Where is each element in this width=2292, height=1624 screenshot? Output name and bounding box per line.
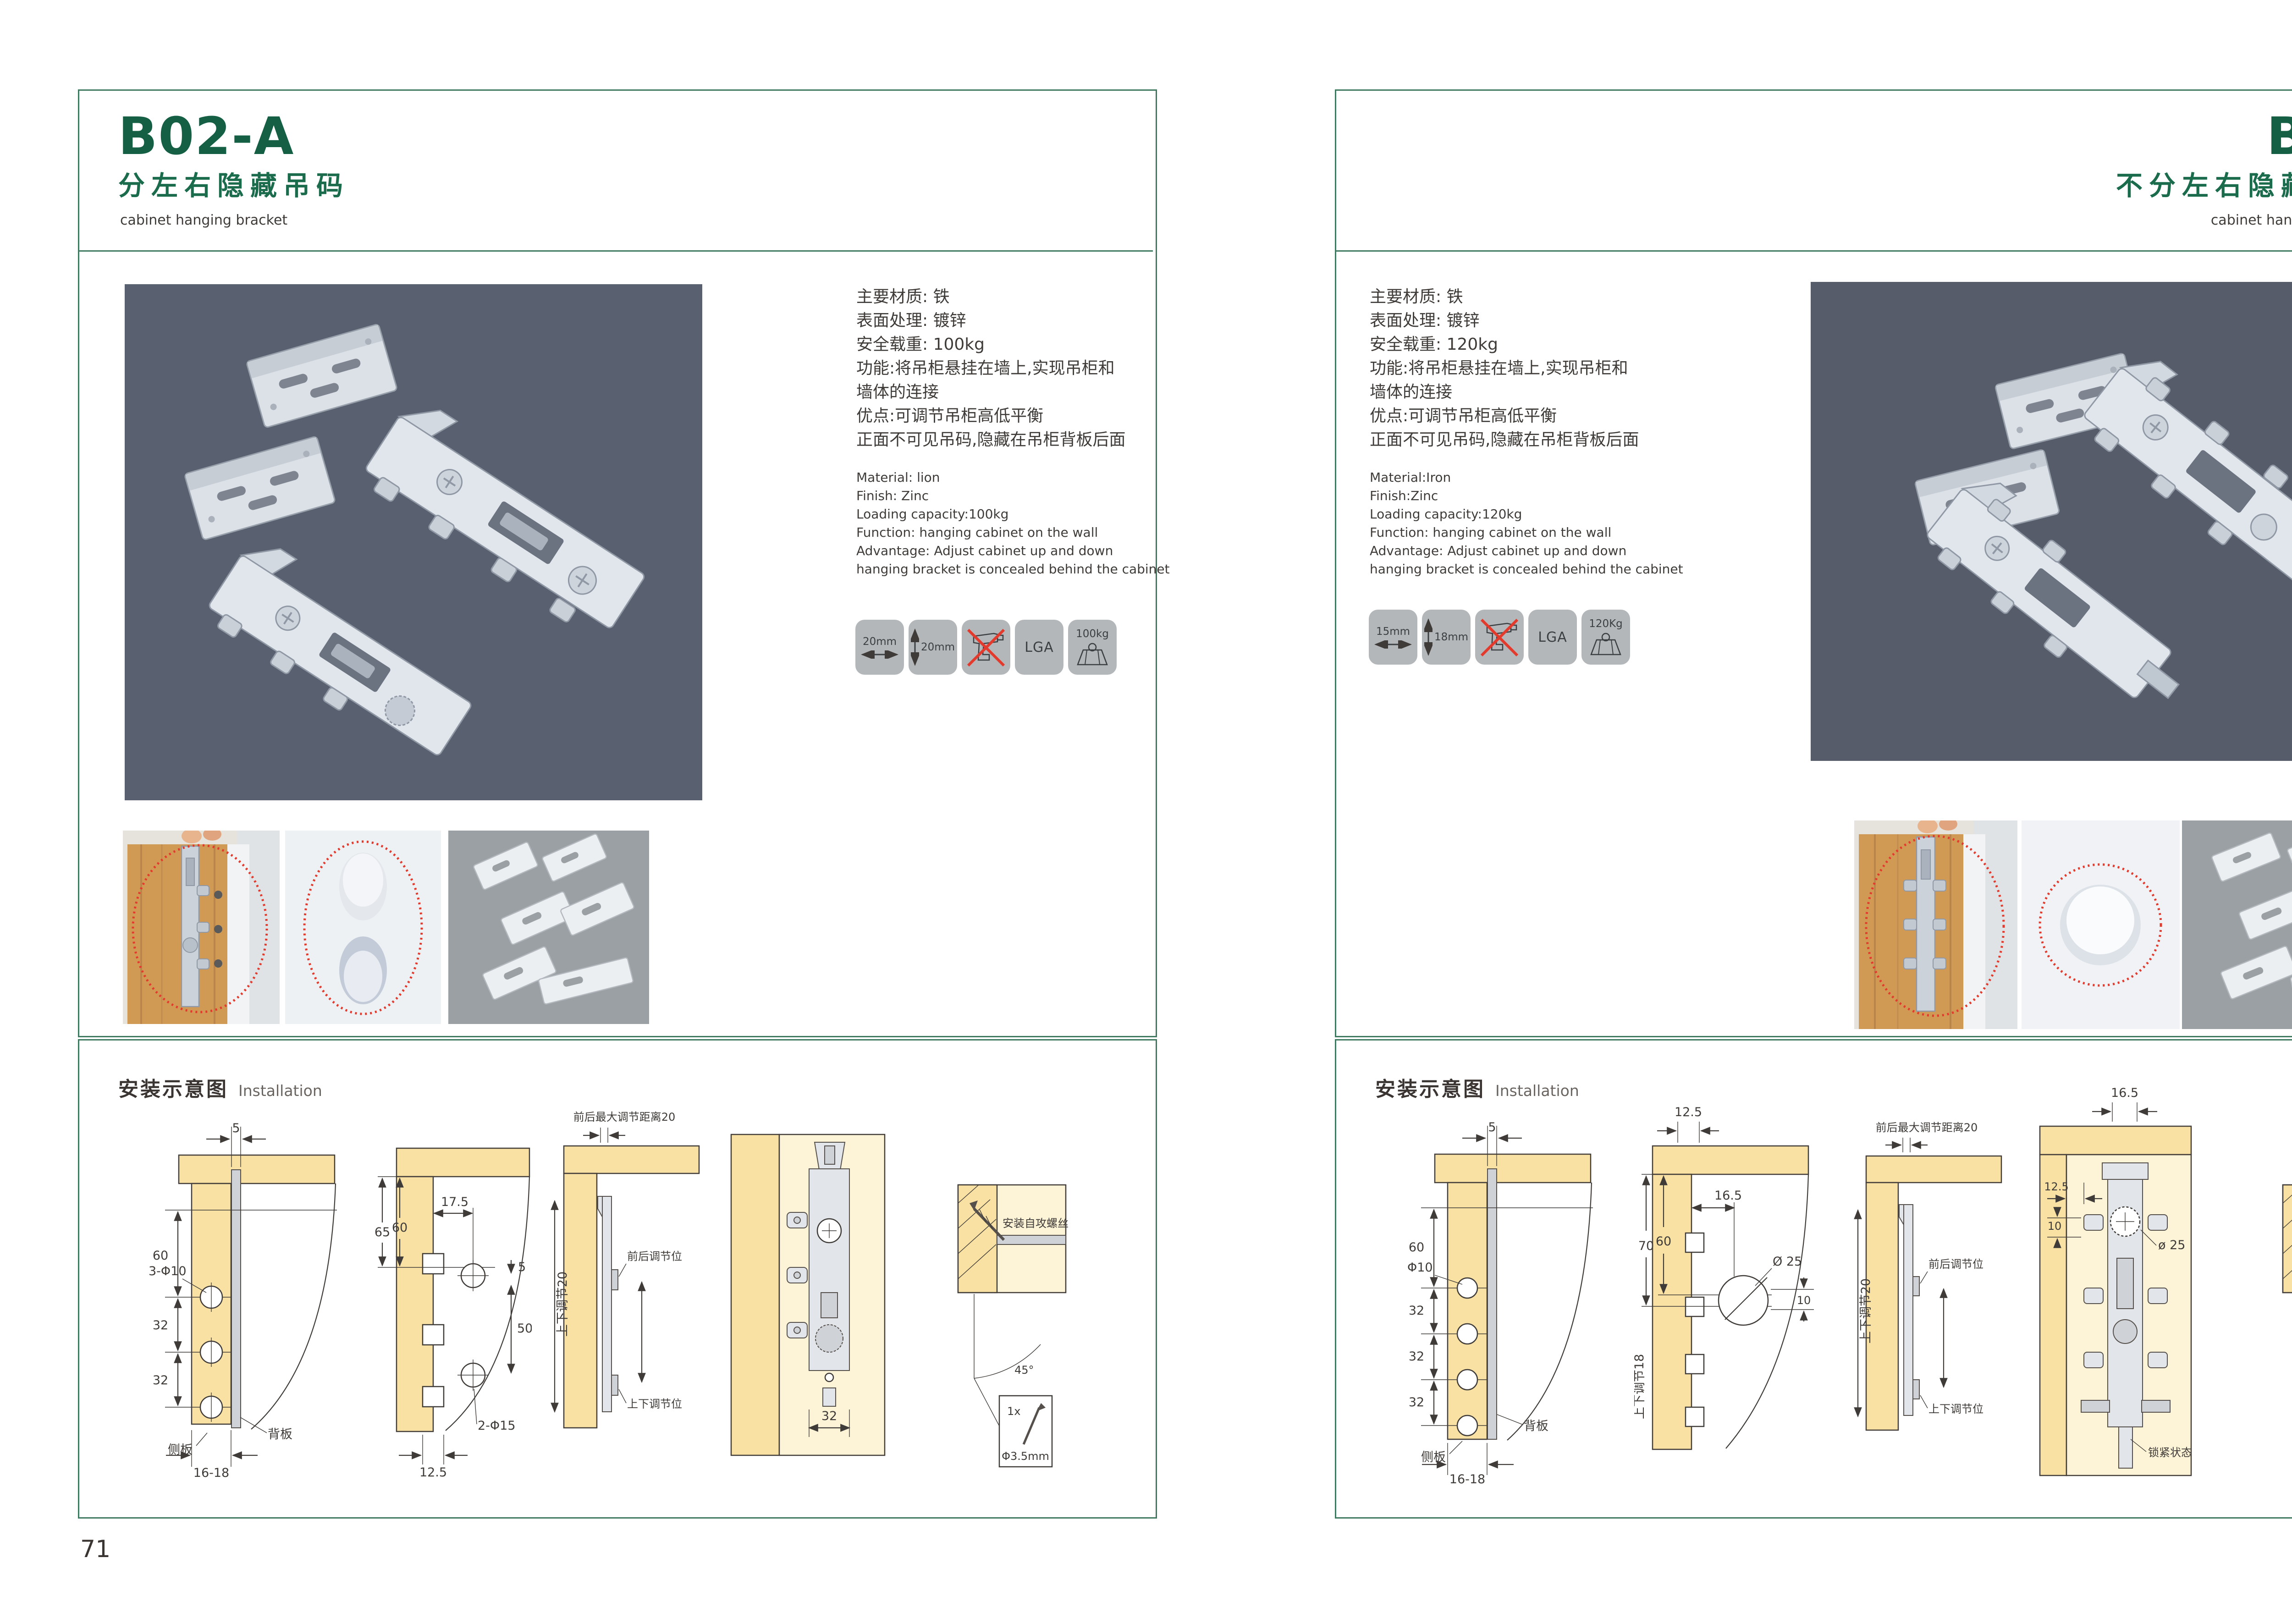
right-diagram-adjustment: 前后最大调节距离20 上下调节20 前后调节位 上下调节位	[1850, 1118, 2003, 1485]
spec-line: 正面不可见吊码,隐藏在吊柜背板后面	[1370, 428, 1639, 452]
badge-load-capacity: 120Kg	[1581, 610, 1630, 665]
spec-line: 功能:将吊柜悬挂在墙上,实现吊柜和	[1370, 357, 1639, 380]
dim-label: 32	[153, 1373, 168, 1387]
left-diagram-bracket-front: 32	[717, 1114, 901, 1485]
side-panel-label: 侧板	[1421, 1450, 1446, 1464]
left-diagram-corner: 65 60 17.5 5 50 2-Φ15 12.5	[371, 1116, 532, 1478]
lga-label: LGA	[1025, 639, 1053, 655]
dim-label: 17.5	[441, 1195, 468, 1209]
dim-label: 16-18	[1449, 1472, 1485, 1485]
spec-line: 优点:可调节吊柜高低平衡	[1370, 404, 1639, 428]
dim-label: 60	[153, 1249, 168, 1263]
back-panel-label: 背板	[268, 1427, 292, 1442]
dim-label: 50	[517, 1321, 532, 1336]
spec-line: hanging bracket is concealed behind the …	[856, 560, 1170, 578]
badge-width-label: 15mm	[1376, 626, 1410, 638]
dim-label: 60	[1409, 1240, 1424, 1255]
self-tapping-screw-label: 安装自攻螺丝	[1003, 1217, 1069, 1230]
spec-line: 正面不可见吊码,隐藏在吊柜背板后面	[856, 428, 1125, 452]
right-diagram-screw-detail: 安装自攻螺丝 45° 1x Φ3.5mm	[2230, 1171, 2292, 1503]
badge-height-label: 18mm	[1434, 631, 1468, 643]
hole-count-label: 3-Φ10	[149, 1264, 187, 1278]
hole-count-label: Φ10	[1407, 1261, 1433, 1275]
right-installation-title: 安装示意图 Installation	[1375, 1073, 1579, 1102]
spec-line: 墙体的连接	[1370, 380, 1639, 404]
dim-label: 5	[232, 1121, 240, 1135]
no-drill-icon	[1479, 616, 1520, 658]
lga-label: LGA	[1538, 629, 1567, 645]
dim-label: 10	[2048, 1220, 2062, 1233]
catalog-spread: B02-A 分左右隐藏吊码 cabinet hanging bracket	[0, 0, 2292, 1624]
vertical-adjust-label: 上下调节18	[1634, 1354, 1647, 1419]
screw-qty-label: 1x	[1007, 1405, 1020, 1418]
install-title-cn: 安装示意图	[118, 1073, 228, 1102]
right-product-code: B03	[1788, 111, 2292, 162]
right-diagram-corner: 12.5 70 60 16.5 Ø 25 10 上下调节18	[1634, 1102, 1827, 1485]
right-header-divider	[1336, 250, 2292, 252]
horizontal-arrow-icon	[1374, 640, 1412, 649]
dim-label: 32	[1409, 1304, 1424, 1318]
spec-line: Function: hanging cabinet on the wall	[856, 523, 1170, 542]
left-concealed-photo	[285, 831, 441, 1024]
dim-label: 12.5	[419, 1465, 447, 1478]
left-header-divider	[79, 250, 1153, 252]
badge-panel-thickness: 20mm	[909, 620, 957, 675]
left-specs-english: Material: lion Finish: Zinc Loading capa…	[856, 468, 1170, 578]
left-install-photo	[123, 831, 280, 1024]
front-back-adjust-label: 前后调节位	[627, 1250, 682, 1263]
spec-line: Loading capacity:120kg	[1370, 505, 1683, 523]
right-product-title-cn: 不分左右隐藏吊码	[1788, 172, 2292, 199]
dim-label: ø 25	[2158, 1238, 2185, 1252]
dim-label: 16-18	[193, 1466, 229, 1480]
dim-label: 10	[1797, 1294, 1811, 1307]
badge-load-capacity: 100kg	[1068, 620, 1117, 675]
lock-state-label: 锁紧状态	[2148, 1446, 2192, 1459]
front-back-adjust-label: 前后调节位	[1928, 1258, 1983, 1271]
left-installation-title: 安装示意图 Installation	[118, 1073, 322, 1102]
left-product-code: B02-A	[118, 111, 294, 162]
badge-no-drill	[1475, 610, 1524, 665]
right-install-photo	[1854, 820, 2017, 1029]
dim-label: 32	[821, 1409, 837, 1423]
install-title-en: Installation	[238, 1082, 322, 1100]
dim-label: 32	[1409, 1349, 1424, 1364]
spec-line: 表面处理: 镀锌	[1370, 309, 1639, 333]
left-specs-chinese: 主要材质: 铁 表面处理: 镀锌 安全载重: 100kg 功能:将吊柜悬挂在墙上…	[856, 285, 1125, 452]
spec-line: Function: hanging cabinet on the wall	[1370, 523, 1683, 542]
spec-line: Finish: Zinc	[856, 487, 1170, 505]
badge-height-label: 20mm	[921, 641, 955, 653]
dim-label: Ø 25	[1773, 1255, 1802, 1269]
dim-label: 5	[518, 1260, 526, 1274]
spec-line: Material:Iron	[1370, 468, 1683, 487]
dim-label: 12.5	[1675, 1105, 1702, 1119]
left-page-number: 71	[80, 1536, 110, 1563]
no-drill-icon	[965, 626, 1007, 668]
screw-diameter-label: Φ3.5mm	[1002, 1450, 1049, 1463]
right-specs-english: Material:Iron Finish:Zinc Loading capaci…	[1370, 468, 1683, 578]
spec-line: Material: lion	[856, 468, 1170, 487]
install-title-en: Installation	[1495, 1082, 1579, 1100]
left-diagram-adjustment: 前后最大调节距离20 上下调节20 前后调节位 上下调节位	[545, 1107, 704, 1487]
left-diagram-screw-detail: 安装自攻螺丝 45° 1x Φ3.5mm	[905, 1171, 1080, 1503]
badge-panel-width: 20mm	[855, 620, 904, 675]
dim-label: 60	[392, 1221, 408, 1235]
load-label: 100kg	[1076, 628, 1109, 640]
horizontal-arrow-icon	[860, 650, 899, 659]
right-product-title-en: cabinet hanging bracket	[1788, 214, 2292, 227]
spec-line: Advantage: Adjust cabinet up and down	[1370, 542, 1683, 560]
left-main-product-photo	[125, 284, 702, 800]
right-specs-chinese: 主要材质: 铁 表面处理: 镀锌 安全载重: 120kg 功能:将吊柜悬挂在墙上…	[1370, 285, 1639, 452]
install-title-cn: 安装示意图	[1375, 1073, 1485, 1102]
dim-label: 12.5	[2044, 1180, 2068, 1193]
left-plates-photo	[448, 831, 649, 1024]
spec-line: 主要材质: 铁	[1370, 285, 1639, 309]
vertical-arrow-icon	[911, 628, 919, 666]
spec-line: Advantage: Adjust cabinet up and down	[856, 542, 1170, 560]
right-diagram-bracket-front: 16.5 12.5 10 ø 25 锁紧状态	[2012, 1084, 2209, 1506]
dim-label: 60	[1656, 1234, 1671, 1249]
right-main-product-photo	[1811, 282, 2292, 761]
spec-line: 墙体的连接	[856, 380, 1125, 404]
dim-label: 65	[375, 1225, 390, 1239]
spec-line: Loading capacity:100kg	[856, 505, 1170, 523]
badge-no-drill	[962, 620, 1010, 675]
badge-lga-certification: LGA	[1528, 610, 1577, 665]
spec-line: 表面处理: 镀锌	[856, 309, 1125, 333]
dim-label: 16.5	[1714, 1189, 1742, 1203]
weight-icon	[1587, 633, 1625, 656]
right-concealed-photo	[2022, 820, 2180, 1029]
load-label: 120Kg	[1589, 618, 1623, 630]
weight-icon	[1073, 643, 1112, 666]
vertical-adjust-label: 上下调节20	[1859, 1278, 1873, 1343]
badge-panel-thickness: 18mm	[1422, 610, 1471, 665]
dim-label: 16.5	[2111, 1086, 2138, 1100]
hole-count-label: 2-Φ15	[478, 1419, 516, 1433]
left-diagram-side-panel: 5 60 32 32 3-Φ10 侧板 背板 16-18	[138, 1114, 358, 1481]
spec-line: 优点:可调节吊柜高低平衡	[856, 404, 1125, 428]
badge-lga-certification: LGA	[1015, 620, 1063, 675]
right-diagram-side-panel: 5 60 32 32 32 Φ10 侧板 背板 16-18	[1394, 1114, 1614, 1485]
left-product-title-en: cabinet hanging bracket	[120, 214, 287, 227]
badge-width-label: 20mm	[863, 636, 897, 648]
left-product-title-cn: 分左右隐藏吊码	[118, 172, 349, 199]
angle-label: 45°	[1014, 1364, 1034, 1376]
vertical-arrow-icon	[1424, 618, 1432, 656]
dim-label: 70	[1638, 1239, 1654, 1253]
badge-panel-width: 15mm	[1369, 610, 1417, 665]
back-panel-label: 背板	[1524, 1419, 1548, 1433]
adjust-range-label: 前后最大调节距离20	[573, 1111, 676, 1123]
up-down-adjust-label: 上下调节位	[1928, 1403, 1983, 1415]
vertical-adjust-label: 上下调节20	[556, 1272, 570, 1337]
right-plates-photo	[2182, 820, 2292, 1029]
spec-line: hanging bracket is concealed behind the …	[1370, 560, 1683, 578]
dim-label: 32	[1409, 1395, 1424, 1409]
up-down-adjust-label: 上下调节位	[627, 1398, 682, 1410]
dim-label: 32	[153, 1318, 168, 1332]
spec-line: 安全载重: 120kg	[1370, 333, 1639, 357]
spec-line: 功能:将吊柜悬挂在墙上,实现吊柜和	[856, 357, 1125, 380]
spec-line: 主要材质: 铁	[856, 285, 1125, 309]
spec-line: Finish:Zinc	[1370, 487, 1683, 505]
dim-label: 5	[1488, 1120, 1496, 1134]
spec-line: 安全载重: 100kg	[856, 333, 1125, 357]
adjust-range-label: 前后最大调节距离20	[1876, 1121, 1978, 1134]
